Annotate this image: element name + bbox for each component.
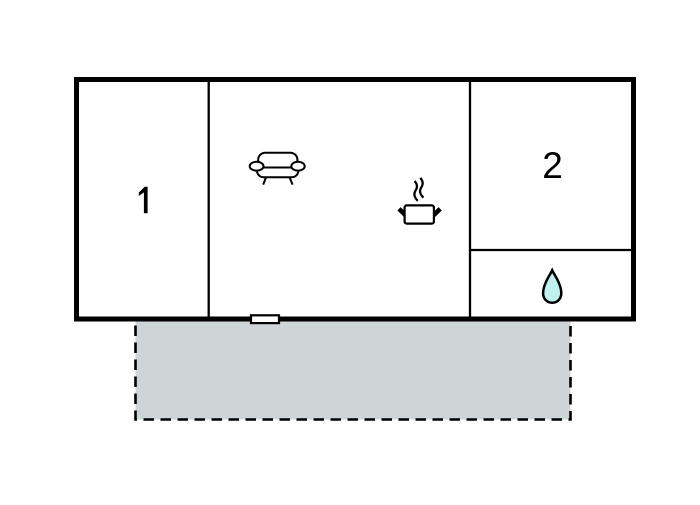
svg-text:2: 2 xyxy=(542,145,563,186)
